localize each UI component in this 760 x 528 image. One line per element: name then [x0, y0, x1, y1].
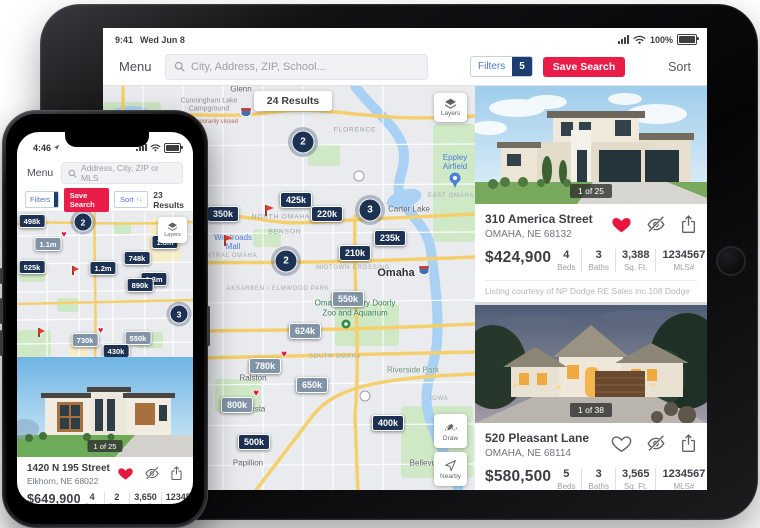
photo-counter: 1 of 25 — [570, 184, 612, 198]
property-card: 1 of 25 310 America Street OMAHA, NE 681… — [475, 86, 707, 302]
wifi-icon — [633, 35, 646, 45]
price-pin[interactable]: 624k — [289, 323, 321, 339]
price-pin[interactable]: 235k — [374, 230, 406, 246]
iphone-map[interactable]: 23498k1.1m♥1.8m748k525k1.2m1.3m890k730k♥… — [17, 212, 193, 357]
price-pin[interactable]: 500k — [238, 434, 270, 450]
baths-value: 2 — [109, 492, 126, 502]
map-label: AKSARBEN / ELMWOOD PARK — [226, 286, 329, 292]
photo-counter: 1 of 25 — [88, 440, 123, 452]
filters-label: Filters — [471, 61, 512, 72]
price-pin[interactable]: 730k♥ — [72, 333, 99, 347]
hide-listing-icon[interactable] — [645, 434, 667, 453]
results-panel: 1 of 25 310 America Street OMAHA, NE 681… — [475, 86, 707, 490]
iphone-volume-up-button — [0, 298, 3, 324]
price-pin[interactable]: 550k — [332, 291, 364, 307]
sqft-label: Sq. Ft. — [134, 503, 157, 504]
iphone-power-button — [207, 306, 210, 346]
search-icon — [174, 61, 185, 72]
price-pin[interactable]: 430k — [103, 344, 130, 357]
iphone-volume-down-button — [0, 330, 3, 356]
property-city: OMAHA, NE 68114 — [485, 448, 611, 459]
favorite-heart-icon: ♥ — [61, 230, 66, 239]
favorite-heart-icon[interactable] — [117, 466, 134, 481]
price-pin[interactable]: 525k — [19, 260, 46, 274]
map-label: NORTH OMAHA — [252, 214, 311, 221]
property-stats: 4Beds 3Baths 3,388Sq. Ft. 1234567MLS# — [551, 249, 707, 272]
layers-button[interactable]: Layers — [434, 93, 467, 122]
filters-button[interactable]: Filters 5 — [25, 191, 59, 208]
property-photo[interactable]: 1 of 38 — [475, 305, 707, 423]
property-info: 1420 N 195 Street Elkhorn, NE 68022 — [17, 457, 193, 504]
flag-marker-icon[interactable] — [72, 266, 74, 275]
draw-icon — [444, 421, 458, 434]
ipad-clock: 9:41 — [115, 35, 133, 45]
baths-label: Baths — [588, 482, 608, 490]
nearby-icon — [444, 459, 457, 472]
price-pin[interactable]: 748k — [124, 251, 151, 265]
map-label: Eppley Airfield — [443, 153, 467, 171]
ipad-home-button[interactable] — [716, 246, 746, 276]
property-stats: 4Beds 2Baths 3,650Sq. Ft. 1234567MLS# — [81, 492, 193, 504]
price-pin[interactable]: 425k — [280, 192, 312, 208]
price-pin[interactable]: 550k — [125, 331, 152, 345]
beds-value: 5 — [557, 468, 575, 480]
favorite-heart-icon: ♥ — [253, 389, 259, 399]
save-search-button[interactable]: Save Search — [543, 57, 625, 77]
price-pin[interactable]: 498k — [19, 214, 46, 228]
map-label: Omaha — [377, 267, 414, 279]
mls-value: 1234567 — [166, 492, 193, 502]
nearby-button[interactable]: Nearby — [434, 452, 467, 486]
nearby-label: Nearby — [440, 473, 461, 480]
search-placeholder: Address, City, ZIP or MLS — [81, 163, 176, 183]
filters-count-badge: 5 — [512, 57, 532, 76]
hide-listing-icon[interactable] — [143, 466, 161, 481]
sort-button[interactable]: Sort ↑↓ — [114, 191, 148, 208]
results-count: 23 Results — [153, 190, 185, 210]
results-count-badge: 24 Results — [254, 91, 332, 111]
baths-value: 3 — [588, 468, 608, 480]
filters-label: Filters — [26, 195, 54, 204]
sqft-label: Sq. Ft. — [622, 263, 650, 272]
price-pin[interactable]: 400k — [372, 415, 404, 431]
draw-button[interactable]: Draw — [434, 414, 467, 448]
iphone-screen: 4:46 — [17, 132, 193, 504]
mls-label: MLS# — [662, 482, 705, 490]
sqft-value: 3,388 — [622, 249, 650, 261]
share-icon[interactable] — [170, 465, 183, 481]
property-address: 520 Pleasant Lane — [485, 431, 611, 445]
battery-icon — [677, 34, 697, 45]
layers-icon — [167, 222, 178, 231]
property-photo[interactable]: 1 of 25 — [17, 357, 193, 457]
map-label: Glenn — [230, 86, 251, 94]
mls-label: MLS# — [166, 503, 193, 504]
map-label: IOWA — [430, 396, 449, 402]
hide-listing-icon[interactable] — [645, 215, 667, 234]
sort-arrows-icon: ↑↓ — [136, 196, 143, 203]
iphone-toolbar: Menu Address, City, ZIP or MLS — [17, 158, 193, 188]
favorite-heart-icon: ♥ — [98, 326, 103, 335]
sqft-label: Sq. Ft. — [622, 482, 650, 490]
ipad-status-bar: 9:41 Wed Jun 8 100% — [103, 28, 707, 48]
property-price: $580,500 — [485, 468, 551, 486]
cluster-pin[interactable]: 3 — [359, 199, 382, 222]
cluster-pin[interactable]: 2 — [74, 213, 93, 232]
baths-value: 3 — [588, 249, 608, 261]
price-pin[interactable]: 780k♥ — [249, 358, 281, 374]
map-label: Riverside Park — [387, 366, 439, 375]
price-pin[interactable]: 800k♥ — [221, 397, 253, 413]
layers-label: Layers — [441, 110, 461, 117]
sqft-value: 3,565 — [622, 468, 650, 480]
battery-icon — [164, 143, 181, 153]
sort-label: Sort — [120, 195, 134, 204]
mls-label: MLS# — [662, 263, 705, 272]
iphone-notch — [65, 132, 149, 147]
property-photo[interactable]: 1 of 25 — [475, 86, 707, 204]
search-icon — [68, 169, 77, 178]
property-city: OMAHA, NE 68132 — [485, 229, 611, 240]
share-icon[interactable] — [680, 433, 697, 453]
layers-button[interactable]: Layers — [158, 217, 187, 243]
map-label: Carter Lake — [388, 205, 430, 214]
location-services-icon — [53, 144, 60, 151]
beds-value: 4 — [85, 492, 100, 502]
property-price: $424,900 — [485, 249, 551, 267]
filters-button[interactable]: Filters 5 — [470, 56, 533, 77]
battery-percent: 100% — [650, 35, 673, 45]
map-label: MIDTOWN CROSSING — [316, 265, 390, 271]
baths-label: Baths — [588, 263, 608, 272]
search-input[interactable]: City, Address, ZIP, School... — [165, 54, 428, 80]
property-city: Elkhorn, NE 68022 — [27, 476, 117, 486]
property-stats: 5Beds 3Baths 3,565Sq. Ft. 1234567MLS# — [551, 468, 707, 490]
cluster-pin[interactable]: 2 — [292, 131, 315, 154]
filters-count-badge: 5 — [54, 192, 58, 207]
search-input[interactable]: Address, City, ZIP or MLS — [61, 162, 183, 184]
price-pin[interactable]: 350k — [207, 206, 239, 222]
property-info: 520 Pleasant Lane OMAHA, NE 68114 — [475, 423, 707, 490]
ipad-date: Wed Jun 8 — [140, 35, 185, 45]
price-pin[interactable]: 1.2m — [89, 261, 116, 275]
search-placeholder: City, Address, ZIP, School... — [191, 61, 326, 73]
menu-button[interactable]: Menu — [119, 59, 165, 74]
beds-label: Beds — [85, 503, 100, 504]
price-pin[interactable]: 890k — [127, 278, 154, 292]
beds-label: Beds — [557, 482, 575, 490]
flag-marker-icon[interactable] — [38, 328, 40, 337]
draw-label: Draw — [443, 435, 458, 442]
price-pin[interactable]: 650k — [296, 377, 328, 393]
beds-value: 4 — [557, 249, 575, 261]
favorite-heart-icon[interactable] — [611, 434, 632, 453]
listing-courtesy: Listing courtesy of NP Dodge RE Sales in… — [485, 280, 697, 296]
iphone-clock: 4:46 — [33, 143, 51, 153]
favorite-heart-icon: ♥ — [281, 350, 287, 360]
mls-value: 1234567 — [662, 468, 705, 480]
price-pin[interactable]: 1.1m♥ — [34, 237, 61, 251]
map-label: SOUTH OMAHA — [309, 354, 361, 360]
property-card: 1 of 38 520 Pleasant Lane OMAHA, NE 6811… — [475, 305, 707, 490]
iphone-filter-row: Filters 5 Save Search Sort ↑↓ 23 Results — [17, 188, 193, 212]
flag-marker-icon[interactable] — [224, 235, 226, 246]
baths-label: Baths — [109, 503, 126, 504]
map-label: BENSON — [269, 229, 302, 236]
page-canvas: 9:41 Wed Jun 8 100% — [0, 0, 760, 528]
sort-button[interactable]: Sort — [668, 60, 691, 74]
wifi-icon — [150, 144, 161, 152]
flag-marker-icon[interactable] — [265, 205, 267, 216]
cellular-signal-icon — [618, 35, 629, 44]
iphone-mute-switch — [0, 268, 3, 284]
property-info: 310 America Street OMAHA, NE 68132 — [475, 204, 707, 302]
map-label: EAST OMAHA — [428, 193, 474, 199]
sqft-value: 3,650 — [134, 492, 157, 502]
iphone-device: 4:46 — [2, 110, 208, 528]
menu-button[interactable]: Menu — [27, 167, 53, 179]
map-label: Cunningham Lake Campground — [180, 98, 238, 115]
mls-value: 1234567 — [662, 249, 705, 261]
map-label: Westroads Mall — [210, 233, 256, 251]
save-search-button[interactable]: Save Search — [64, 188, 109, 212]
photo-counter: 1 of 38 — [570, 403, 612, 417]
property-address: 1420 N 195 Street — [27, 463, 117, 474]
property-price: $649,900 — [27, 492, 81, 504]
layers-label: Layers — [164, 232, 181, 238]
price-pin[interactable]: 210k — [339, 245, 371, 261]
map-label: Ralston — [239, 374, 266, 383]
ipad-toolbar: Menu City, Address, ZIP, School... Filte… — [103, 48, 707, 86]
map-label: FLORENCE — [334, 127, 377, 134]
share-icon[interactable] — [680, 214, 697, 234]
cluster-pin[interactable]: 3 — [170, 305, 189, 324]
property-address: 310 America Street — [485, 212, 611, 226]
map-label: Papillion — [233, 459, 263, 468]
cluster-pin[interactable]: 2 — [275, 250, 298, 273]
layers-icon — [444, 98, 457, 109]
price-pin[interactable]: 220k — [311, 206, 343, 222]
beds-label: Beds — [557, 263, 575, 272]
favorite-heart-icon[interactable] — [611, 215, 632, 234]
